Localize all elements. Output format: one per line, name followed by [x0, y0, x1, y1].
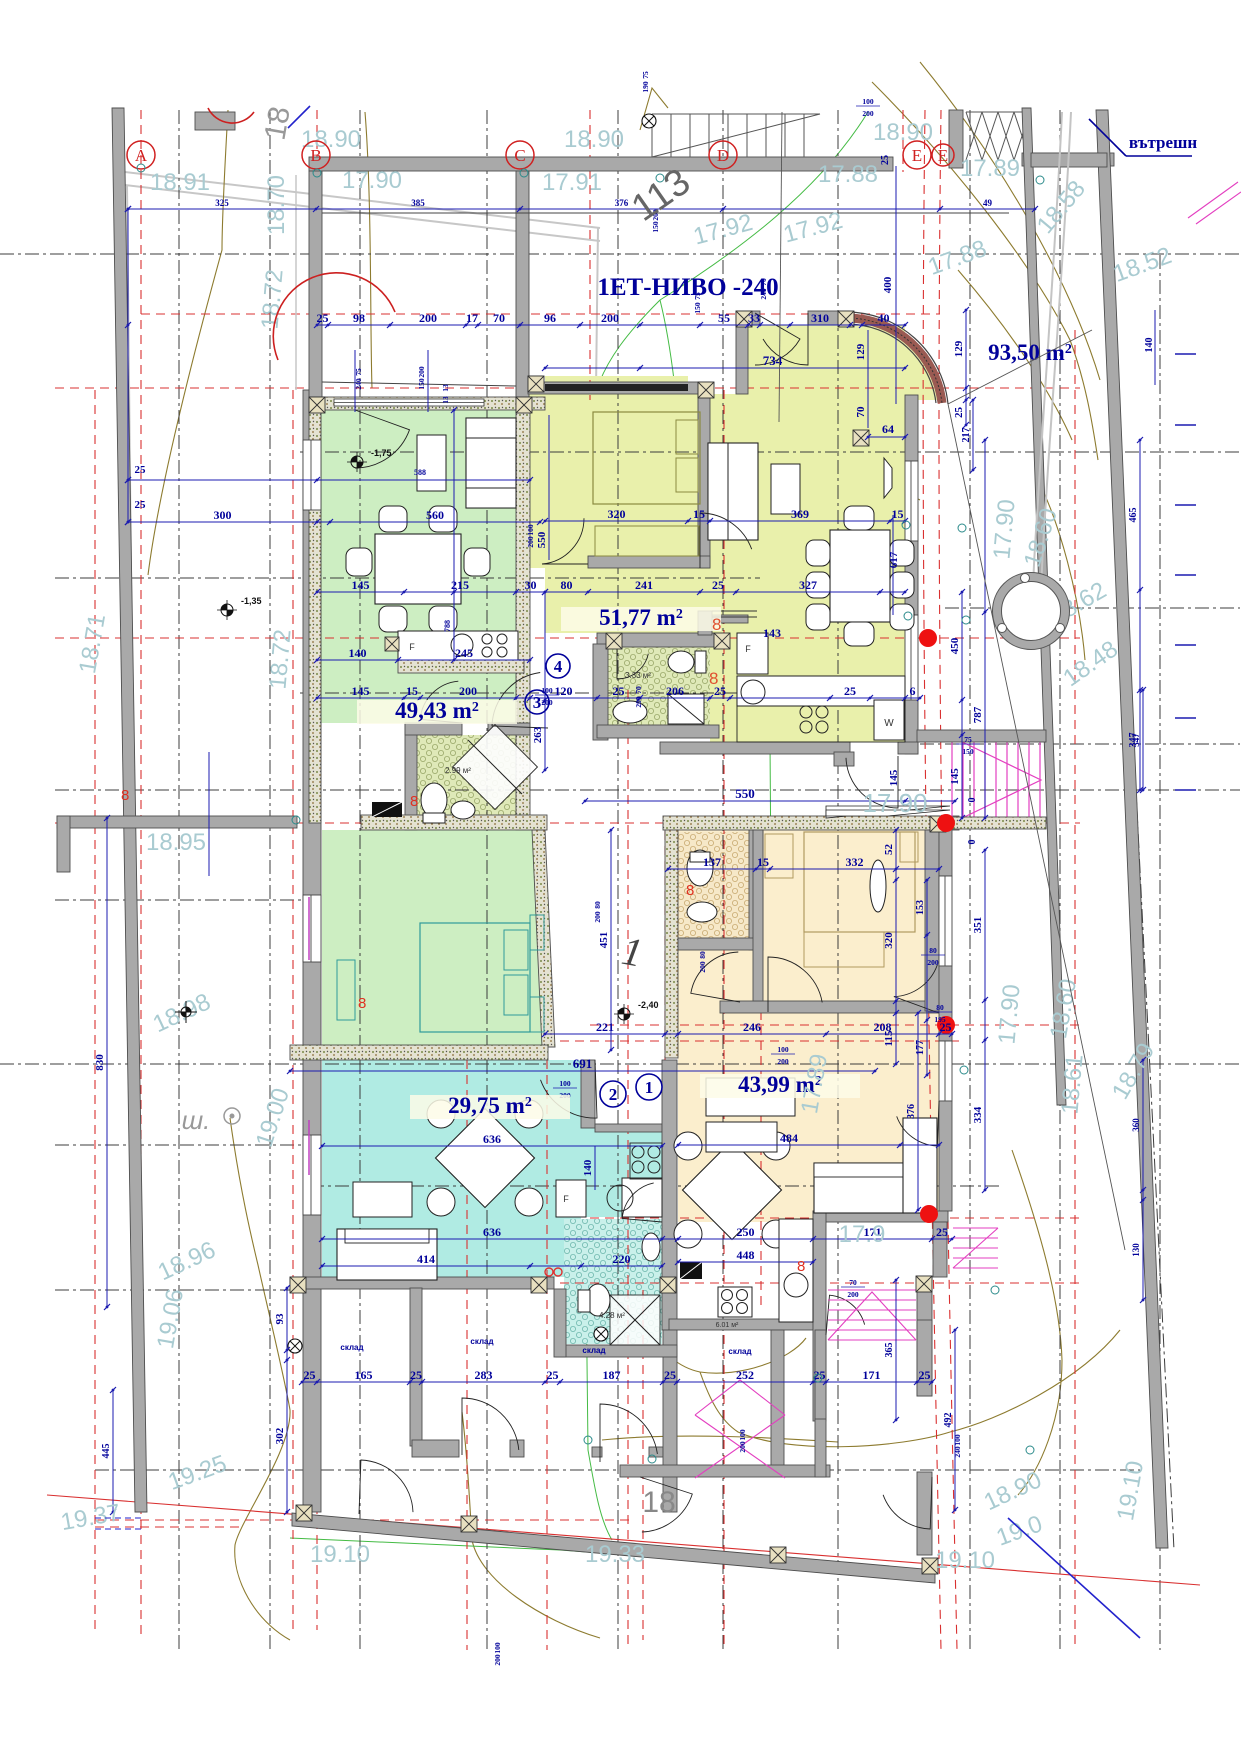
svg-text:W: W — [884, 718, 894, 729]
svg-text:F: F — [563, 1194, 569, 1204]
svg-text:200: 200 — [698, 961, 707, 973]
svg-text:4.28 м²: 4.28 м² — [599, 1311, 625, 1320]
svg-text:588: 588 — [414, 468, 426, 477]
svg-text:18.91: 18.91 — [150, 169, 210, 196]
svg-text:200: 200 — [493, 1654, 502, 1666]
svg-text:70: 70 — [855, 406, 867, 418]
svg-text:25: 25 — [135, 499, 147, 511]
svg-text:385: 385 — [411, 198, 425, 208]
svg-text:52: 52 — [883, 844, 895, 856]
svg-text:150: 150 — [417, 378, 426, 390]
svg-text:200: 200 — [526, 536, 535, 548]
svg-text:6: 6 — [910, 684, 916, 698]
svg-text:200: 200 — [459, 684, 477, 698]
svg-text:100: 100 — [493, 1642, 502, 1654]
svg-text:140: 140 — [1144, 338, 1155, 353]
svg-text:17: 17 — [466, 311, 478, 325]
svg-text:334: 334 — [972, 1106, 984, 1123]
svg-text:145: 145 — [352, 578, 370, 592]
svg-text:18.70: 18.70 — [263, 175, 290, 235]
svg-text:445: 445 — [101, 1444, 112, 1459]
svg-text:2: 2 — [609, 1085, 618, 1104]
svg-text:130: 130 — [1131, 1243, 1141, 1257]
svg-text:0: 0 — [967, 798, 978, 803]
svg-text:283: 283 — [475, 1368, 493, 1382]
svg-text:19.10: 19.10 — [935, 1547, 995, 1574]
svg-text:206: 206 — [666, 684, 684, 698]
svg-text:25: 25 — [613, 684, 625, 698]
svg-text:200: 200 — [417, 366, 426, 378]
svg-text:636: 636 — [483, 1132, 501, 1146]
svg-text:склад: склад — [582, 1346, 605, 1355]
svg-text:550: 550 — [735, 786, 755, 801]
svg-text:332: 332 — [846, 855, 864, 869]
svg-text:17.90: 17.90 — [988, 498, 1020, 560]
svg-text:55: 55 — [718, 311, 730, 325]
svg-text:склад: склад — [340, 1343, 363, 1352]
svg-text:80: 80 — [593, 901, 602, 909]
svg-text:80: 80 — [561, 578, 573, 592]
svg-text:376: 376 — [906, 1104, 917, 1119]
svg-text:Е: Е — [912, 146, 922, 165]
svg-text:165: 165 — [355, 1368, 373, 1382]
svg-text:200: 200 — [738, 1441, 747, 1453]
svg-text:6.01 м²: 6.01 м² — [716, 1322, 739, 1329]
svg-text:98: 98 — [353, 311, 365, 325]
svg-text:245: 245 — [455, 646, 473, 660]
svg-text:18: 18 — [258, 104, 296, 143]
svg-text:617: 617 — [888, 551, 900, 568]
svg-text:100: 100 — [738, 1429, 747, 1441]
svg-text:15: 15 — [693, 507, 705, 521]
svg-text:369: 369 — [791, 507, 809, 521]
svg-text:А: А — [135, 146, 148, 165]
svg-text:17.91: 17.91 — [542, 169, 602, 196]
svg-text:0: 0 — [967, 840, 978, 845]
svg-text:15: 15 — [406, 684, 418, 698]
svg-text:153: 153 — [915, 900, 926, 915]
svg-text:200: 200 — [927, 958, 939, 967]
svg-text:450: 450 — [949, 637, 961, 654]
svg-text:220: 220 — [613, 1252, 631, 1266]
svg-text:25: 25 — [664, 1368, 676, 1382]
svg-text:25: 25 — [304, 1368, 316, 1382]
svg-text:120: 120 — [555, 684, 573, 698]
svg-text:25: 25 — [919, 1368, 931, 1382]
svg-text:550: 550 — [536, 531, 548, 548]
svg-text:25: 25 — [547, 1368, 559, 1382]
svg-text:70: 70 — [493, 311, 505, 325]
svg-text:17.89: 17.89 — [960, 155, 1020, 182]
svg-text:25: 25 — [953, 407, 965, 419]
svg-text:3: 3 — [533, 693, 542, 712]
svg-text:787: 787 — [972, 706, 984, 723]
svg-text:18.90: 18.90 — [564, 126, 624, 153]
svg-text:302: 302 — [274, 1427, 286, 1444]
svg-text:200: 200 — [601, 311, 619, 325]
svg-text:93,50 m2: 93,50 m2 — [988, 340, 1072, 365]
svg-text:100: 100 — [559, 1079, 571, 1088]
svg-text:64: 64 — [882, 422, 894, 436]
svg-text:200: 200 — [419, 311, 437, 325]
svg-text:115: 115 — [883, 1030, 895, 1046]
svg-text:15: 15 — [757, 855, 769, 869]
svg-text:В: В — [310, 146, 321, 165]
svg-text:263: 263 — [532, 726, 544, 743]
svg-text:187: 187 — [603, 1368, 621, 1382]
svg-text:18.95: 18.95 — [146, 829, 206, 856]
svg-text:17.90: 17.90 — [862, 788, 927, 818]
svg-text:240: 240 — [953, 1446, 962, 1458]
svg-text:190: 190 — [641, 81, 650, 93]
svg-text:171: 171 — [863, 1368, 881, 1382]
svg-text:25: 25 — [410, 1368, 422, 1382]
svg-text:150: 150 — [693, 302, 702, 314]
svg-text:70: 70 — [849, 1278, 857, 1287]
svg-text:80: 80 — [929, 946, 937, 955]
svg-text:3.33 м²: 3.33 м² — [625, 671, 651, 680]
svg-text:склад: склад — [470, 1337, 493, 1346]
svg-text:241: 241 — [635, 578, 653, 592]
svg-text:75: 75 — [641, 71, 650, 79]
svg-text:D: D — [717, 146, 729, 165]
svg-text:-1,35: -1,35 — [241, 596, 262, 606]
svg-text:145: 145 — [352, 684, 370, 698]
svg-text:300: 300 — [214, 508, 232, 522]
svg-text:195: 195 — [934, 1015, 946, 1024]
svg-text:8: 8 — [709, 669, 718, 688]
svg-text:25: 25 — [135, 464, 147, 476]
svg-text:150: 150 — [962, 747, 974, 756]
svg-text:145: 145 — [888, 769, 900, 786]
svg-text:325: 325 — [215, 198, 229, 208]
svg-text:140: 140 — [582, 1159, 594, 1176]
svg-text:484: 484 — [780, 1131, 798, 1145]
svg-text:25: 25 — [844, 684, 856, 698]
svg-text:145: 145 — [949, 768, 961, 785]
svg-text:320: 320 — [883, 932, 895, 949]
svg-text:129: 129 — [855, 343, 867, 360]
svg-text:18.72: 18.72 — [256, 268, 288, 330]
svg-text:4: 4 — [554, 657, 563, 676]
svg-text:С: С — [514, 146, 525, 165]
svg-text:1ЕТ-НИВО -240: 1ЕТ-НИВО -240 — [597, 274, 778, 301]
svg-text:33: 33 — [748, 311, 760, 325]
svg-text:49: 49 — [983, 198, 993, 208]
svg-text:93: 93 — [274, 1313, 286, 1325]
svg-text:49,43 m2: 49,43 m2 — [395, 698, 479, 723]
svg-text:18: 18 — [642, 1486, 675, 1519]
svg-text:465: 465 — [1128, 508, 1139, 523]
svg-text:200: 200 — [634, 696, 643, 708]
svg-text:29,75 m2: 29,75 m2 — [448, 1093, 532, 1118]
svg-text:17.9: 17.9 — [839, 1221, 886, 1248]
svg-text:13: 13 — [441, 384, 450, 392]
svg-text:Е: Е — [938, 146, 948, 165]
svg-text:17.88: 17.88 — [818, 161, 878, 188]
svg-text:8: 8 — [797, 1258, 805, 1275]
svg-text:70: 70 — [634, 686, 643, 694]
svg-text:177: 177 — [915, 1040, 926, 1055]
svg-text:25: 25 — [317, 311, 329, 325]
svg-text:8: 8 — [410, 793, 418, 810]
svg-text:200: 200 — [593, 911, 602, 923]
svg-text:691: 691 — [573, 1056, 593, 1071]
svg-text:8: 8 — [121, 787, 129, 804]
svg-text:788: 788 — [443, 620, 452, 632]
svg-text:347: 347 — [1131, 733, 1141, 747]
svg-text:400: 400 — [882, 276, 894, 293]
svg-text:75: 75 — [964, 735, 972, 744]
svg-text:351: 351 — [972, 917, 984, 934]
svg-text:200: 200 — [777, 1057, 789, 1066]
svg-text:200: 200 — [862, 109, 874, 118]
svg-text:451: 451 — [598, 932, 610, 949]
svg-text:17.90: 17.90 — [993, 983, 1025, 1045]
svg-text:ш.: ш. — [182, 1105, 211, 1135]
svg-text:830: 830 — [94, 1054, 106, 1071]
svg-text:560: 560 — [426, 508, 444, 522]
svg-text:327: 327 — [799, 578, 817, 592]
svg-text:30: 30 — [525, 578, 537, 592]
svg-text:100: 100 — [777, 1045, 789, 1054]
svg-text:320: 320 — [608, 507, 626, 521]
svg-text:96: 96 — [544, 311, 556, 325]
svg-text:18.90: 18.90 — [873, 119, 933, 146]
svg-text:25: 25 — [712, 578, 724, 592]
svg-text:137: 137 — [703, 855, 721, 869]
svg-text:100: 100 — [862, 97, 874, 106]
svg-text:склад: склад — [728, 1347, 751, 1356]
svg-text:129: 129 — [953, 340, 965, 357]
svg-text:19.33: 19.33 — [585, 1541, 645, 1568]
svg-text:18.72: 18.72 — [264, 628, 296, 690]
svg-text:8: 8 — [686, 882, 694, 899]
svg-text:F: F — [409, 642, 415, 652]
svg-text:636: 636 — [483, 1225, 501, 1239]
svg-text:80: 80 — [698, 951, 707, 959]
svg-text:40: 40 — [878, 311, 890, 325]
svg-text:140: 140 — [349, 646, 367, 660]
svg-text:100: 100 — [953, 1434, 962, 1446]
svg-text:492: 492 — [943, 1413, 954, 1428]
svg-text:25: 25 — [880, 155, 891, 165]
svg-text:18.61: 18.61 — [1056, 1053, 1088, 1115]
svg-text:вътрешн: вътрешн — [1129, 133, 1198, 152]
svg-text:2.99 м²: 2.99 м² — [445, 766, 471, 775]
svg-text:1: 1 — [645, 1078, 654, 1097]
svg-text:100: 100 — [526, 524, 535, 536]
svg-text:448: 448 — [737, 1248, 755, 1262]
svg-text:217: 217 — [961, 428, 972, 443]
svg-text:200: 200 — [541, 698, 553, 707]
svg-text:17.90: 17.90 — [342, 167, 402, 194]
svg-text:8: 8 — [358, 995, 366, 1012]
svg-text:25: 25 — [936, 1225, 948, 1239]
svg-text:-1,75: -1,75 — [371, 448, 392, 458]
svg-text:365: 365 — [884, 1343, 895, 1358]
svg-text:252: 252 — [736, 1368, 754, 1382]
svg-text:143: 143 — [763, 626, 781, 640]
svg-text:310: 310 — [811, 311, 829, 325]
svg-text:200: 200 — [847, 1290, 859, 1299]
svg-text:360: 360 — [1131, 1118, 1141, 1132]
svg-text:250: 250 — [737, 1225, 755, 1239]
svg-text:51,77 m2: 51,77 m2 — [599, 605, 683, 630]
svg-text:246: 246 — [743, 1020, 761, 1034]
svg-text:100: 100 — [541, 686, 553, 695]
svg-text:414: 414 — [417, 1252, 435, 1266]
svg-text:13: 13 — [441, 396, 450, 404]
svg-text:19.10: 19.10 — [310, 1541, 370, 1568]
svg-text:80: 80 — [936, 1003, 944, 1012]
svg-text:-2,40: -2,40 — [638, 1000, 659, 1010]
svg-text:8: 8 — [712, 615, 721, 634]
svg-text:F: F — [745, 644, 751, 654]
